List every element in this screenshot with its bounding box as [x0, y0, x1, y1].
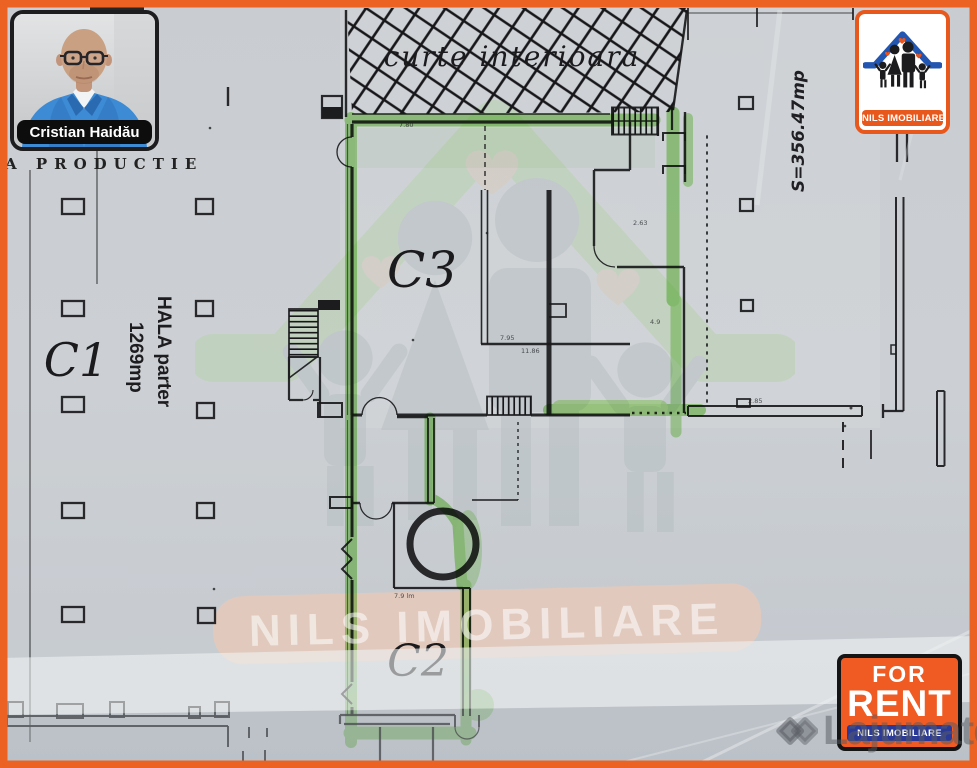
hall-label-line1: HALA parter: [153, 296, 174, 408]
courtyard-label: curte interioara: [384, 40, 641, 73]
dimension-text: 2.85: [748, 397, 762, 405]
for-rent-line2: RENT: [841, 686, 958, 721]
area-note: S=356.47mp: [789, 70, 809, 192]
dimension-text: 11.86: [521, 347, 540, 355]
nils-house-family-icon: [865, 35, 939, 89]
agent-photo-card: Cristian Haidău: [10, 10, 159, 151]
nils-logo-banner: NILS IMOBILIARE: [862, 110, 943, 126]
listing-image: curte interioara C3 C1 C2 A PRODUCTIE HA…: [0, 0, 977, 768]
for-rent-badge: FOR RENT NILS IMOBILIARE: [837, 654, 962, 751]
unit-c3-label: C3: [387, 241, 457, 299]
for-rent-footer: NILS IMOBILIARE: [847, 725, 952, 741]
nils-logo-sign: NILS IMOBILIARE: [855, 10, 950, 134]
dimension-text: 4.9: [650, 318, 660, 326]
hall-label-line2: 1269mp: [125, 322, 146, 393]
dimension-text: 7.9 lm: [394, 592, 415, 600]
dimension-text: 2.63: [633, 219, 647, 227]
production-label: A PRODUCTIE: [4, 155, 203, 173]
agent-name-label: Cristian Haidău: [17, 120, 152, 144]
unit-c1-label: C1: [44, 333, 108, 387]
dimension-text: 7.95: [500, 334, 514, 342]
